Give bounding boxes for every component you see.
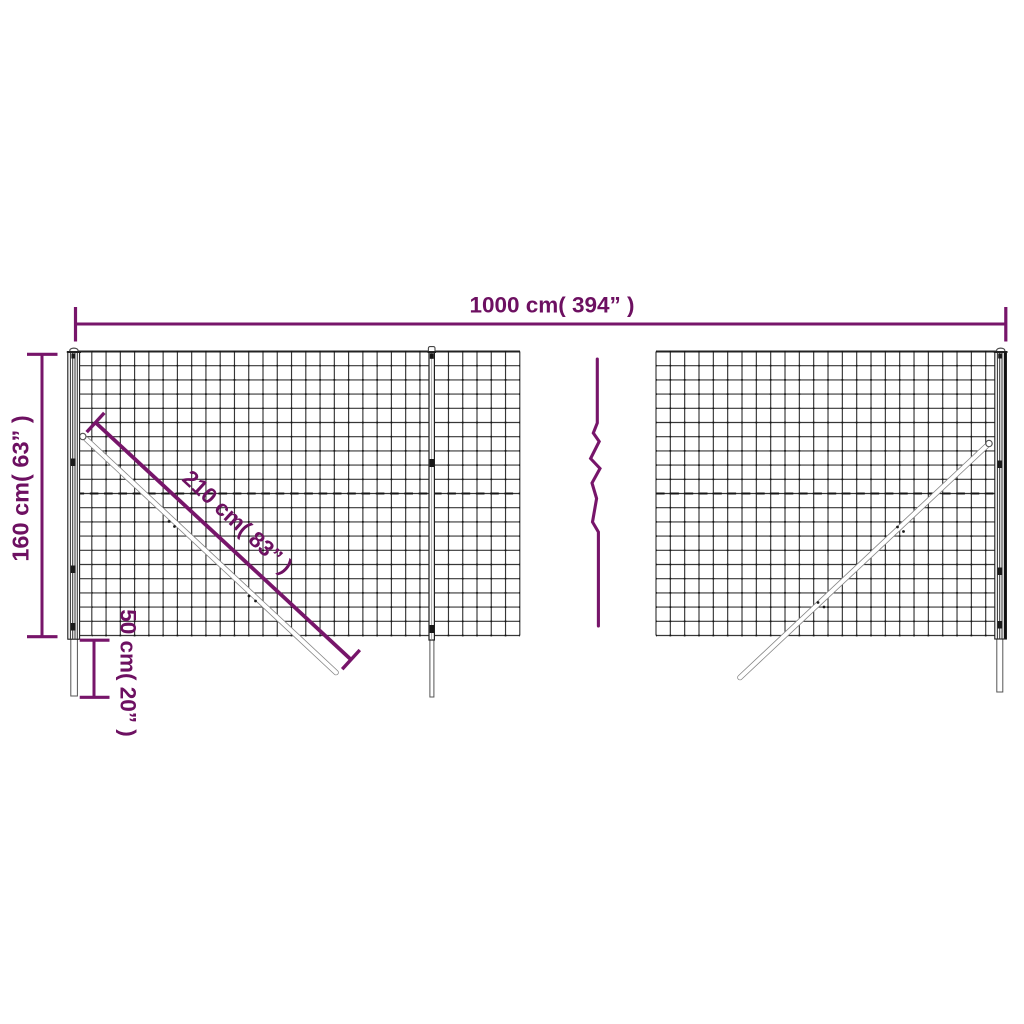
svg-text:160 cm( 63” ): 160 cm( 63” ) bbox=[8, 415, 34, 561]
svg-text:1000 cm( 394” ): 1000 cm( 394” ) bbox=[469, 293, 634, 318]
svg-text:50 cm( 20” ): 50 cm( 20” ) bbox=[116, 609, 141, 737]
